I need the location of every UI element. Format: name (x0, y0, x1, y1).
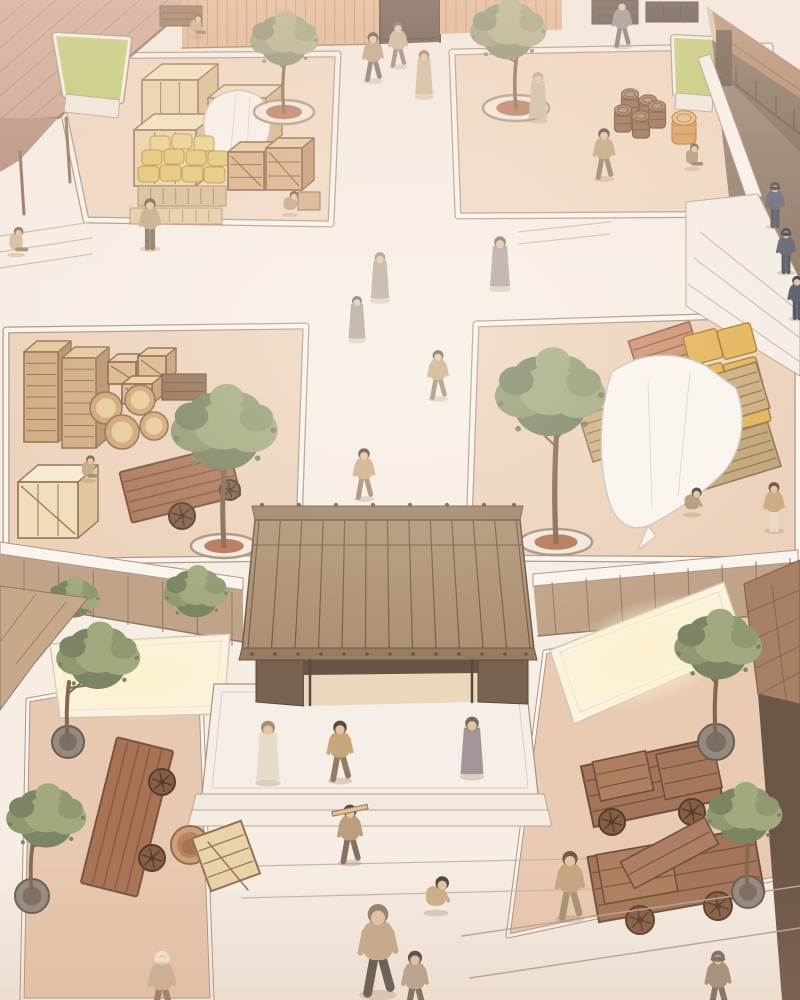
webtoon-panel (0, 0, 800, 1000)
haze-center-overlay (0, 30, 800, 650)
market-courtyard-illustration (0, 0, 800, 1000)
haze-bottom-overlay (0, 850, 800, 1000)
